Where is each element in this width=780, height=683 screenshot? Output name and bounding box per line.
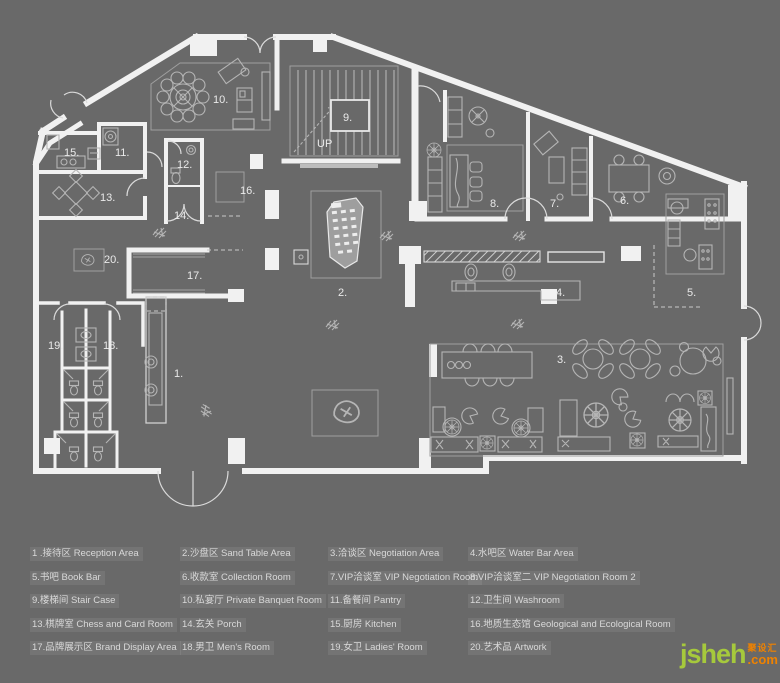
legend-item: 15.厨房 Kitchen	[328, 618, 401, 632]
room-label-19: 19.	[48, 340, 63, 352]
legend-item: 18.男卫 Men's Room	[180, 641, 274, 655]
watermark-name: jsheh	[680, 644, 746, 666]
room-label-8: 8.	[490, 198, 499, 210]
legend-item: 12.卫生间 Washroom	[468, 594, 564, 608]
room-label-9: 9.	[343, 112, 352, 124]
room-label-17: 17.	[187, 270, 202, 282]
legend-item: 4.水吧区 Water Bar Area	[468, 547, 578, 561]
legend-item: 6.收款室 Collection Room	[180, 571, 295, 585]
legend-item: 2.沙盘区 Sand Table Area	[180, 547, 295, 561]
room-label-20: 20.	[104, 254, 119, 266]
watermark-logo: jsheh 聚设汇 .com	[680, 644, 778, 666]
room-label-3: 3.	[557, 354, 566, 366]
legend-item: 11.备餐间 Pantry	[328, 594, 405, 608]
floor-plan: 1.2.3.4.5.6.7.8.9.10.11.12.13.14.15.16.1…	[0, 0, 780, 540]
legend-item: 19.女卫 Ladies' Room	[328, 641, 427, 655]
room-label-16: 16.	[240, 185, 255, 197]
room-label-UP: UP	[317, 138, 332, 150]
room-label-13: 13.	[100, 192, 115, 204]
room-label-14: 14.	[174, 210, 189, 222]
room-label-15: 15.	[64, 147, 79, 159]
legend-item: 9.楼梯间 Stair Case	[30, 594, 119, 608]
room-label-11: 11.	[115, 147, 129, 159]
room-label-5: 5.	[687, 287, 696, 299]
room-label-12: 12.	[177, 159, 192, 171]
legend-item: 1 .接待区 Reception Area	[30, 547, 143, 561]
legend-item: 13.棋牌室 Chess and Card Room	[30, 618, 177, 632]
legend-item: 5.书吧 Book Bar	[30, 571, 105, 585]
legend-item: 8.VIP洽谈室二 VIP Negotiation Room 2	[468, 571, 640, 585]
legend: 1 .接待区 Reception Area2.沙盘区 Sand Table Ar…	[30, 547, 754, 655]
legend-item: 17.品牌展示区 Brand Display Area	[30, 641, 181, 655]
legend-item: 3.洽谈区 Negotiation Area	[328, 547, 443, 561]
room-label-6: 6.	[620, 195, 629, 207]
room-label-18: 18.	[103, 340, 118, 352]
legend-item: 16.地质生态馆 Geological and Ecological Room	[468, 618, 675, 632]
room-label-4: 4.	[556, 287, 565, 299]
room-label-10: 10.	[213, 94, 228, 106]
watermark-suffix: .com	[748, 653, 778, 666]
legend-item: 7.VIP洽谈室 VIP Negotiation Room	[328, 571, 482, 585]
room-label-1: 1.	[174, 368, 183, 380]
legend-item: 14.玄关 Porch	[180, 618, 246, 632]
room-label-7: 7.	[550, 198, 559, 210]
legend-item: 20.艺术品 Artwork	[468, 641, 551, 655]
room-label-2: 2.	[338, 287, 347, 299]
legend-item: 10.私宴厅 Private Banquet Room	[180, 594, 326, 608]
